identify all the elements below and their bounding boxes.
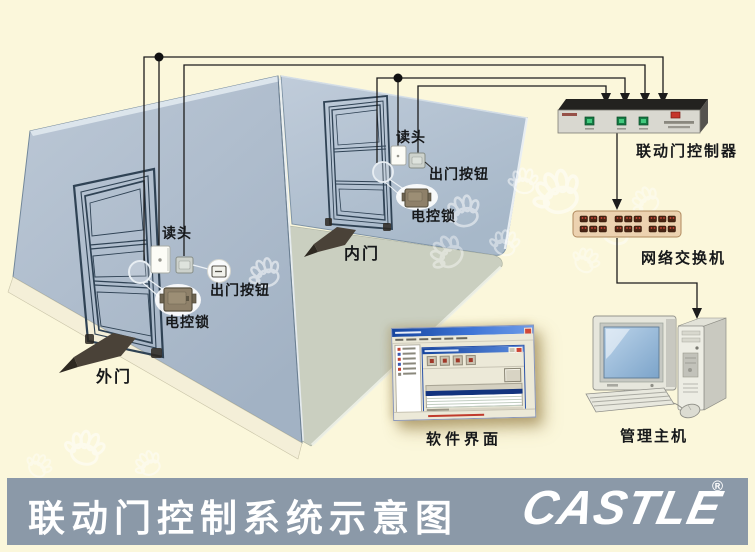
diagram-canvas: [0, 0, 755, 552]
controller-power-led: [671, 112, 680, 118]
child-window: [421, 345, 526, 414]
label-inner-exit-button: 出门按钮: [429, 164, 489, 184]
label-outer-door: 外门: [96, 363, 132, 387]
tower-case: [678, 318, 726, 410]
registered-trademark-icon: ®: [712, 478, 723, 495]
label-software-ui: 软件界面: [426, 428, 502, 449]
page-title: 联动门控制系统示意图: [28, 488, 458, 542]
inner-door-reader-device: [391, 146, 406, 165]
footer-bar: 联动门控制系统示意图 CASTLE ®: [7, 478, 748, 545]
outer-door-reader-device: [151, 246, 170, 273]
controller-device: [558, 99, 708, 133]
label-controller: 联动门控制器: [636, 140, 738, 161]
network-switch-device: [573, 211, 681, 237]
label-inner-reader: 读头: [396, 127, 426, 147]
label-outer-exit-button: 出门按钮: [210, 280, 270, 300]
label-outer-lock: 电控锁: [165, 312, 210, 332]
label-outer-reader: 读头: [162, 223, 192, 243]
outer-door-exit-button-device: [176, 257, 193, 273]
far-wall: [281, 76, 527, 255]
outer-door-lock-device: [160, 288, 196, 311]
label-inner-lock: 电控锁: [411, 206, 456, 226]
inner-door-lock-device: [402, 189, 431, 207]
software-ui-window: [391, 325, 536, 421]
keyboard: [586, 388, 674, 412]
label-inner-door: 内门: [344, 240, 380, 264]
toolbar: [423, 352, 524, 369]
label-management-host: 管理主机: [620, 425, 688, 446]
tree-panel: [394, 344, 422, 415]
management-host-computer: [586, 316, 726, 420]
label-network-switch: 网络交换机: [641, 247, 726, 268]
schematic-page: 读头 出门按钮 电控锁 外门 读头 出门按钮 电控锁 内门 联动门控制器 网络交…: [0, 0, 755, 552]
toolbar-big-button: [504, 368, 521, 382]
brand-logo: CASTLE: [517, 481, 727, 536]
